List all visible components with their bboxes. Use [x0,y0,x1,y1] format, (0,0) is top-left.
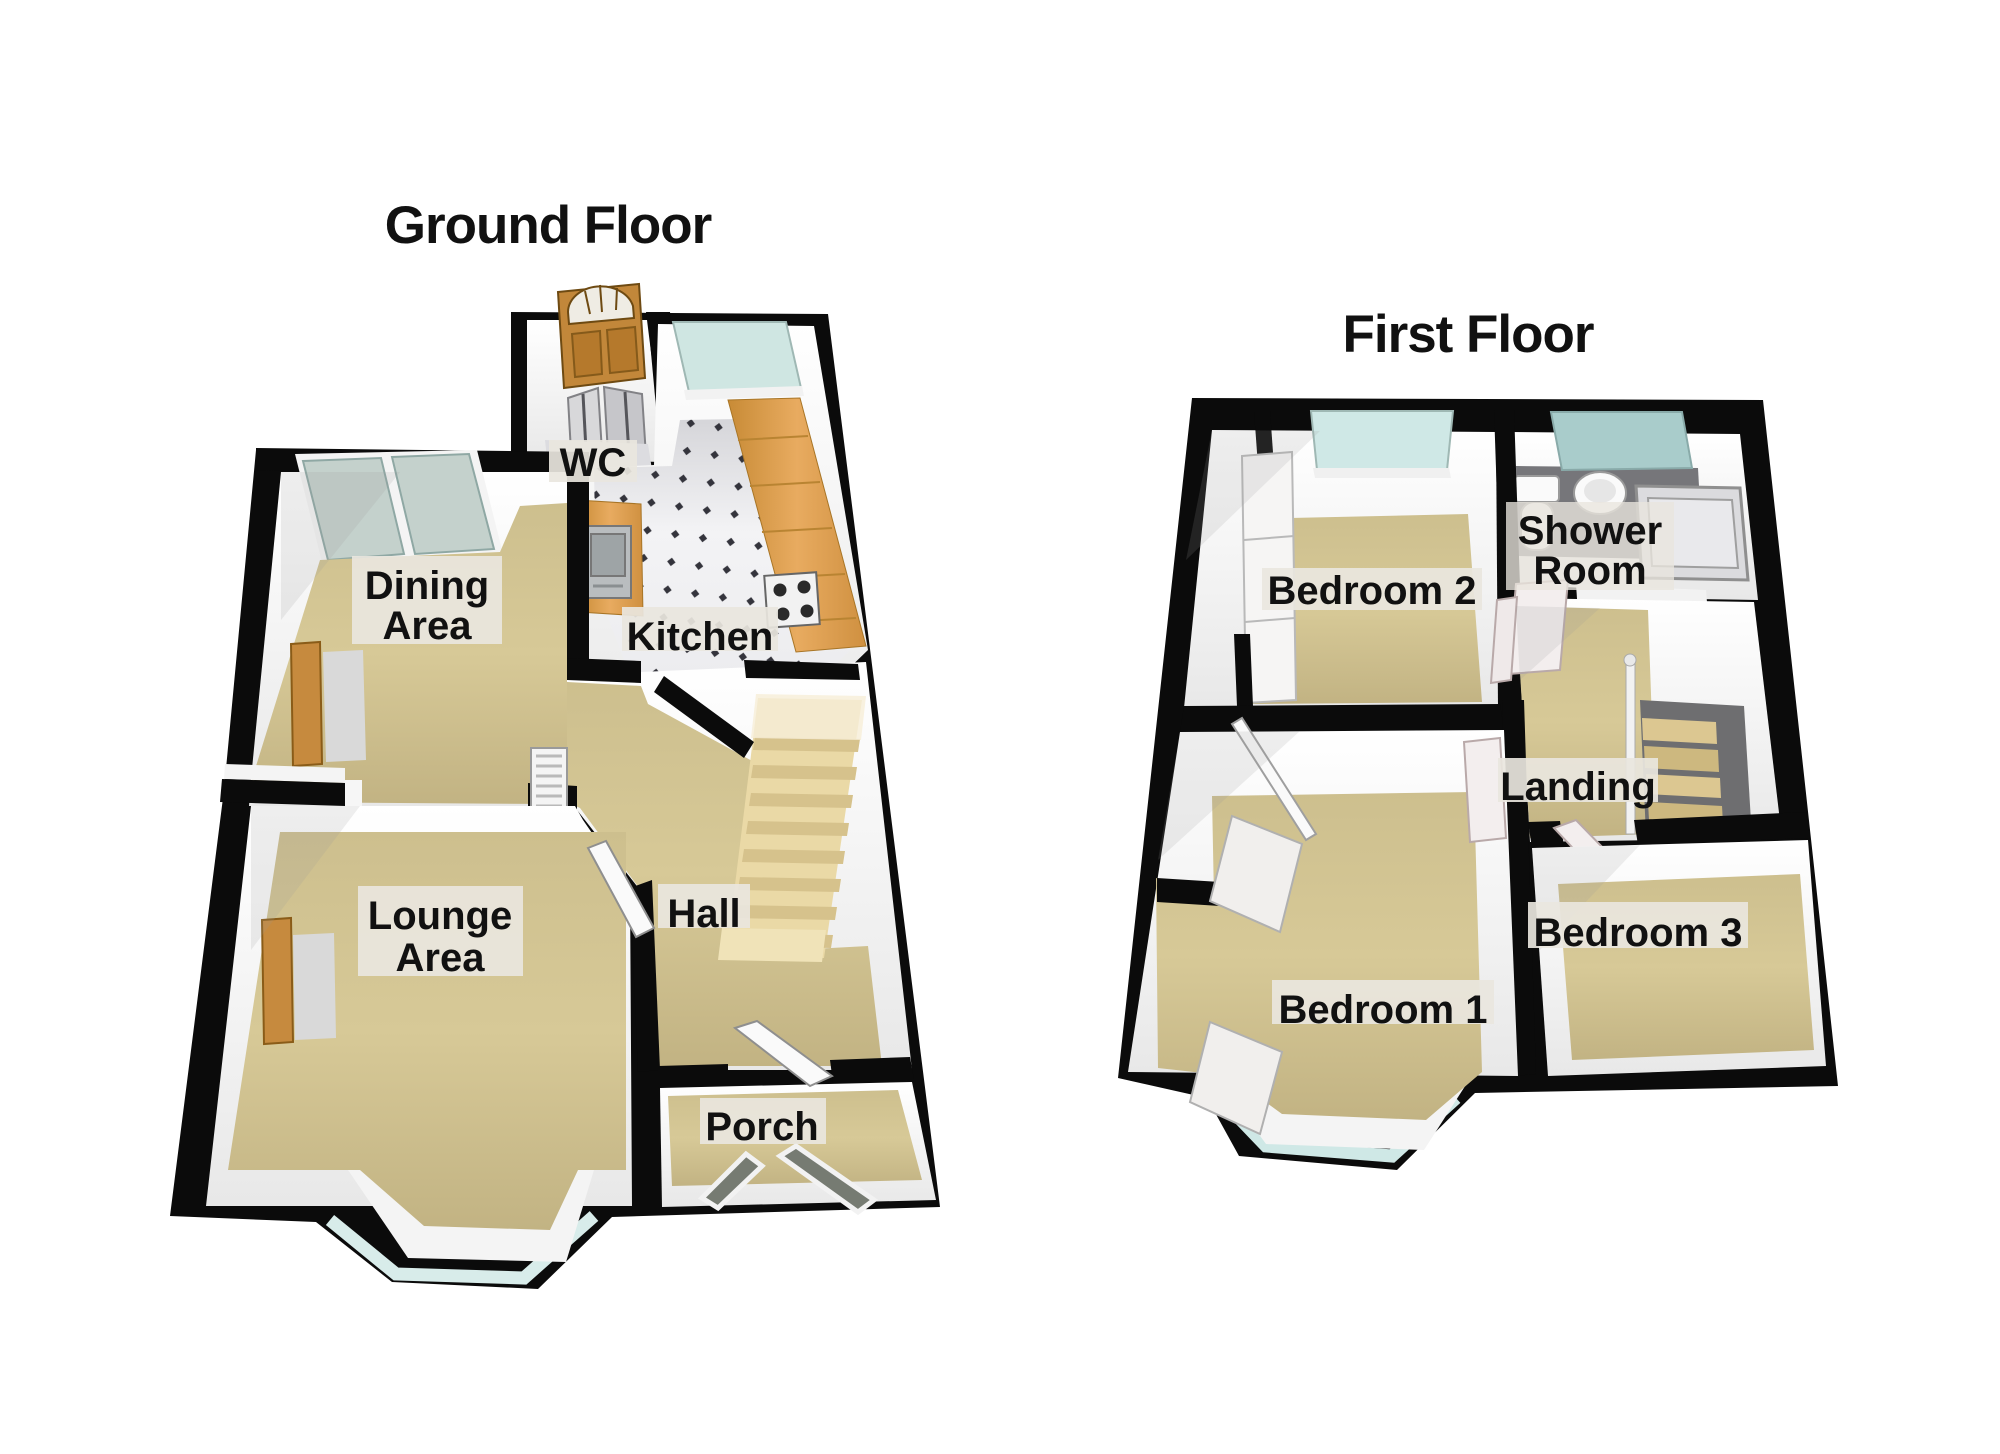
svg-text:Hall: Hall [667,892,740,936]
svg-text:Bedroom 3: Bedroom 3 [1534,911,1743,955]
svg-text:Room: Room [1533,549,1646,593]
svg-text:Porch: Porch [705,1105,818,1149]
svg-text:Bedroom 1: Bedroom 1 [1279,988,1488,1032]
svg-text:Area: Area [383,604,473,648]
svg-text:Lounge: Lounge [368,894,512,938]
svg-text:Kitchen: Kitchen [627,615,774,659]
svg-text:Shower: Shower [1518,509,1662,553]
svg-text:WC: WC [560,441,627,485]
svg-text:Bedroom 2: Bedroom 2 [1268,569,1477,613]
svg-text:Ground Floor: Ground Floor [385,196,712,255]
svg-text:Landing: Landing [1500,765,1656,809]
svg-text:Dining: Dining [365,564,489,608]
svg-text:First Floor: First Floor [1342,305,1593,364]
svg-text:Area: Area [396,936,486,980]
